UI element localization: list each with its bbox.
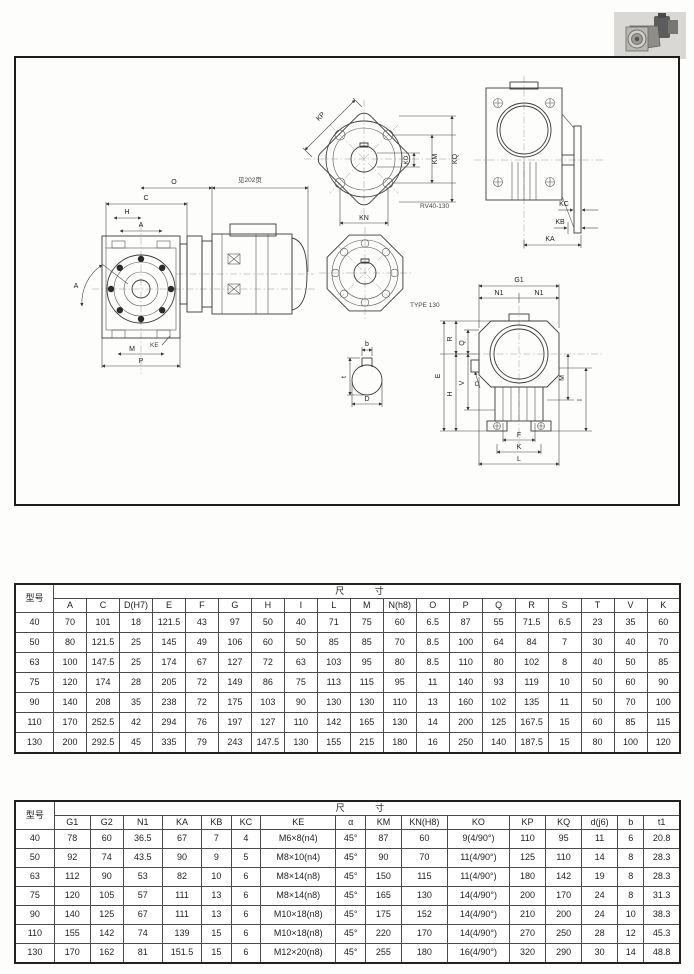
dim-cell: 79 [185,733,218,754]
dim-cell: 100 [449,633,482,653]
dim-cell: 90 [647,673,680,693]
model-column-header: 型号 [15,801,54,830]
table-row: 9014020835238721751039013013011013160102… [15,693,680,713]
column-header: Q [482,599,515,613]
dim-cell: 80 [482,653,515,673]
dim-cell: 147.5 [87,653,120,673]
dim-cell: 174 [87,673,120,693]
dim-cell: 80 [54,633,87,653]
dim-cell: 200 [546,906,582,925]
dim-cell: 25 [120,633,153,653]
dim-cell: 90 [365,849,401,868]
technical-drawing-panel: O 见202页 C H A A KE M P KP [14,56,680,506]
dim-cell: 72 [251,653,284,673]
dim-cell: 210 [510,906,546,925]
dim-cell: 100 [54,653,87,673]
dim-cell: 82 [162,868,201,887]
dim-cell: 135 [515,693,548,713]
column-header: KQ [546,816,582,830]
dim-cell: 8 [548,653,581,673]
table-row: 7512010557111136M8×14(n8)45°16513014(4/9… [15,887,680,906]
dim-label-KN: KN [359,215,369,222]
dim-label-L: L [517,456,521,463]
dim-cell: 50 [251,613,284,633]
dim-cell: 320 [510,944,546,964]
dim-cell: 24 [582,887,618,906]
dim-cell: 115 [401,868,447,887]
dim-cell: 110 [449,653,482,673]
dim-cell: 335 [152,733,185,754]
dim-cell: 120 [647,733,680,754]
model-column-header: 型号 [15,584,54,613]
dim-cell: 70 [383,633,416,653]
dim-cell: 11(4/90°) [447,849,509,868]
dim-cell: 28.3 [644,868,680,887]
dim-cell: 45° [336,906,365,925]
dim-cell: 290 [546,944,582,964]
column-header: S [548,599,581,613]
dim-cell: 53 [123,868,162,887]
column-header: D(H7) [120,599,153,613]
dim-cell: 70 [614,693,647,713]
dim-cell: 162 [90,944,123,964]
dim-cell: 40 [284,613,317,633]
model-cell: 110 [15,713,54,733]
dim-cell: 57 [123,887,162,906]
dim-cell: 28 [582,925,618,944]
model-cell: 75 [15,673,54,693]
dim-cell: 15 [202,925,231,944]
table-row: 63100147.52517467127726310395808.5110801… [15,653,680,673]
dim-cell: 11 [416,673,449,693]
dim-cell: 14(4/90°) [447,925,509,944]
dim-cell: 150 [365,868,401,887]
dim-label-V: V [459,380,466,385]
dim-label-KP: KP [315,111,327,123]
dim-label-I: I [577,399,584,401]
dim-cell: 4 [231,830,260,849]
column-header: b [618,816,644,830]
dim-cell: 130 [383,713,416,733]
dim-cell: 63 [284,653,317,673]
dim-cell: 113 [317,673,350,693]
model-cell: 40 [15,830,54,849]
dim-cell: 67 [185,653,218,673]
dim-cell: 43.5 [123,849,162,868]
dim-cell: 25 [120,653,153,673]
dim-label-E: E [435,373,442,378]
dim-label-C: C [143,195,148,202]
dim-cell: 6.5 [548,613,581,633]
dim-cell: 15 [548,713,581,733]
dimension-table-1: 型号尺 寸ACD(H7)EFGHILMN(h8)OPQRSTVK40701011… [14,583,681,754]
column-header: KP [510,816,546,830]
dim-cell: 180 [401,944,447,964]
dim-cell: 18 [120,613,153,633]
dim-cell: 50 [614,653,647,673]
rear-view: G1 N1 N1 E R H Q V O M I F [435,277,602,466]
dim-cell: 87 [365,830,401,849]
dim-cell: 110 [383,693,416,713]
dim-cell: 130 [317,693,350,713]
dim-cell: 60 [647,613,680,633]
model-cell: 50 [15,849,54,868]
dim-cell: 13 [416,693,449,713]
dim-cell: 95 [383,673,416,693]
dim-label-H: H [447,391,454,396]
dim-cell: 151.5 [162,944,201,964]
dim-label-K: K [517,444,522,451]
dim-cell: 84 [515,633,548,653]
dim-cell: 60 [251,633,284,653]
dim-cell: 95 [350,653,383,673]
key-dim-t: t [341,376,348,378]
dim-label-KE: KE [150,342,159,349]
dim-cell: M10×18(n8) [261,906,336,925]
dim-cell: 45 [120,733,153,754]
model-cell: 130 [15,733,54,754]
dim-cell: 167.5 [515,713,548,733]
dim-cell: 149 [218,673,251,693]
dimension-table-2: 型号尺 寸G1G2N1KAKBKCKEαKMKN(H8)KOKPKQd(j6)b… [14,800,681,964]
dim-cell: 174 [152,653,185,673]
dim-cell: 14(4/90°) [447,887,509,906]
table-row: 13017016281151.5156M12×20(n8)45°25518016… [15,944,680,964]
dim-cell: 90 [162,849,201,868]
dim-cell: 140 [54,693,87,713]
dim-cell: 125 [510,849,546,868]
dim-cell: 60 [614,673,647,693]
dim-label-G1: G1 [514,277,523,284]
dim-cell: 23 [581,613,614,633]
dim-cell: 8 [618,849,644,868]
dim-cell: 74 [123,925,162,944]
dim-cell: 7 [548,633,581,653]
model-cell: 75 [15,887,54,906]
dim-cell: 170 [401,925,447,944]
dim-cell: 170 [54,713,87,733]
dim-cell: 142 [90,925,123,944]
dim-cell: 215 [350,733,383,754]
dim-cell: 110 [546,849,582,868]
dim-cell: 80 [383,653,416,673]
dim-cell: M8×14(n8) [261,887,336,906]
table-row: 130200292.54533579243147.513015521518016… [15,733,680,754]
dim-label-P: P [139,358,144,365]
dim-cell: 145 [152,633,185,653]
dim-cell: 238 [152,693,185,713]
dim-cell: 78 [54,830,90,849]
dim-cell: 112 [54,868,90,887]
dim-cell: 165 [365,887,401,906]
dim-cell: 208 [87,693,120,713]
dim-cell: 243 [218,733,251,754]
column-header: d(j6) [582,816,618,830]
dim-cell: 200 [54,733,87,754]
dim-cell: 13 [202,906,231,925]
dim-cell: 85 [317,633,350,653]
dim-cell: 75 [350,613,383,633]
dim-cell: 60 [581,713,614,733]
dimensions-group-header: 尺 寸 [54,801,680,816]
model-cell: 130 [15,944,54,964]
dim-cell: 50 [284,633,317,653]
dim-cell: 49 [185,633,218,653]
dim-cell: 45° [336,849,365,868]
dim-cell: 60 [90,830,123,849]
dim-cell: 30 [582,944,618,964]
dim-cell: 170 [546,887,582,906]
gearbox-motor-side-view: O 见202页 C H A A KE M P [74,176,316,374]
dim-cell: 106 [218,633,251,653]
dim-cell: 147.5 [251,733,284,754]
dim-cell: 90 [284,693,317,713]
dim-cell: 100 [647,693,680,713]
dim-cell: 197 [218,713,251,733]
shaft-keyway-detail: b t D [341,341,382,407]
angle-label-A: A [74,283,79,290]
dim-cell: 87 [449,613,482,633]
column-header: R [515,599,548,613]
dim-label-KB: KB [555,219,565,226]
dim-cell: 119 [515,673,548,693]
dim-cell: M10×18(n8) [261,925,336,944]
dim-cell: 200 [449,713,482,733]
dim-label-N1-right: N1 [535,290,544,297]
dim-cell: 70 [54,613,87,633]
dim-cell: 8 [618,868,644,887]
dim-cell: 8.5 [416,653,449,673]
table-row: 40786036.56774M6×8(n4)45°87609(4/90°)110… [15,830,680,849]
dim-cell: 36.5 [123,830,162,849]
column-header: α [336,816,365,830]
column-header: N(h8) [383,599,416,613]
column-header: P [449,599,482,613]
dim-cell: 5 [231,849,260,868]
dim-cell: 103 [317,653,350,673]
dim-cell: 15 [548,733,581,754]
dim-label-N1-left: N1 [495,290,504,297]
table-row: 50927443.59095M8×10(n4)45°907011(4/90°)1… [15,849,680,868]
model-cell: 90 [15,693,54,713]
column-header: KE [261,816,336,830]
dim-cell: 28 [120,673,153,693]
dim-cell: 130 [350,693,383,713]
dim-label-A: A [139,222,144,229]
dim-cell: 121.5 [87,633,120,653]
dim-cell: 74 [90,849,123,868]
dim-cell: 11 [548,693,581,713]
dim-cell: 252.5 [87,713,120,733]
dim-cell: 55 [482,613,515,633]
dim-cell: 127 [251,713,284,733]
dim-cell: 71.5 [515,613,548,633]
dim-cell: 9 [202,849,231,868]
column-header: C [87,599,120,613]
dim-cell: 14 [618,944,644,964]
dim-cell: 40 [581,653,614,673]
column-header: KN(H8) [401,816,447,830]
dim-cell: 255 [365,944,401,964]
dim-cell: 110 [284,713,317,733]
dim-cell: 111 [162,887,201,906]
dim-cell: 45° [336,830,365,849]
dim-cell: 95 [546,830,582,849]
dim-cell: 250 [546,925,582,944]
dim-cell: 115 [647,713,680,733]
dim-cell: 13 [202,887,231,906]
dim-cell: 72 [185,673,218,693]
see-page-note: 见202页 [238,176,262,184]
dim-cell: 7 [202,830,231,849]
dim-cell: 170 [54,944,90,964]
column-header: N1 [123,816,162,830]
column-header: V [614,599,647,613]
table-row: 407010118121.5439750407175606.5875571.56… [15,613,680,633]
column-header: H [251,599,284,613]
dim-cell: 180 [383,733,416,754]
dim-cell: 40 [614,633,647,653]
output-shaft-side-view: KC KB KA [474,76,604,250]
dim-cell: 6 [231,925,260,944]
column-header: KB [202,816,231,830]
dim-cell: 85 [614,713,647,733]
dim-cell: 14(4/90°) [447,906,509,925]
dim-cell: 45.3 [644,925,680,944]
dim-cell: 155 [317,733,350,754]
product-photo [614,12,686,59]
dim-label-KQ: KQ [452,153,459,164]
column-header: K [647,599,680,613]
dim-cell: 120 [54,887,90,906]
dim-cell: 160 [449,693,482,713]
dim-label-Q: Q [459,340,466,346]
table-row: 7512017428205721498675113115951114093119… [15,673,680,693]
dim-cell: 101 [87,613,120,633]
column-header: A [54,599,87,613]
dim-cell: 14 [416,713,449,733]
dim-cell: 152 [401,906,447,925]
dim-cell: 10 [202,868,231,887]
dim-label-M: M [559,375,566,381]
dim-cell: 50 [581,693,614,713]
dim-cell: 6.5 [416,613,449,633]
dim-cell: 20.8 [644,830,680,849]
dim-cell: 42 [120,713,153,733]
table-row: 63112905382106M8×14(n8)45°15011511(4/90°… [15,868,680,887]
column-header: I [284,599,317,613]
dim-label-M: M [129,346,135,353]
dim-cell: 93 [482,673,515,693]
dim-cell: 19 [582,868,618,887]
key-dim-D: D [364,396,369,403]
dim-cell: 75 [284,673,317,693]
dim-cell: 140 [449,673,482,693]
dim-label-KC: KC [559,201,569,208]
dim-cell: 72 [185,693,218,713]
dim-cell: 70 [401,849,447,868]
dim-cell: M8×14(n8) [261,868,336,887]
column-header: KO [447,816,509,830]
dim-cell: 12 [618,925,644,944]
model-cell: 63 [15,653,54,673]
dim-cell: 35 [120,693,153,713]
column-header: O [416,599,449,613]
dim-cell: 121.5 [152,613,185,633]
column-header: KM [365,816,401,830]
dim-cell: 28.3 [644,849,680,868]
dim-cell: 64 [482,633,515,653]
dim-cell: M6×8(n4) [261,830,336,849]
output-flange-view: TYPE 130 [319,227,440,319]
column-header: L [317,599,350,613]
dim-label-O: O [171,179,177,186]
dim-cell: 14 [582,849,618,868]
dim-cell: 70 [647,633,680,653]
table-row: 5080121.5251454910660508585708.510064847… [15,633,680,653]
dim-cell: 31.3 [644,887,680,906]
dimensions-group-header: 尺 寸 [54,584,680,599]
dim-cell: 140 [54,906,90,925]
column-header: G2 [90,816,123,830]
dim-cell: 270 [510,925,546,944]
dim-cell: 35 [614,613,647,633]
dim-cell: 9(4/90°) [447,830,509,849]
column-header: t1 [644,816,680,830]
dim-cell: 85 [647,653,680,673]
dim-cell: 30 [581,633,614,653]
dim-cell: 139 [162,925,201,944]
dim-cell: 90 [90,868,123,887]
column-header: T [581,599,614,613]
dim-cell: 175 [218,693,251,713]
table-row: 9014012567111136M10×18(n8)45°17515214(4/… [15,906,680,925]
input-flange-view: KP KM KQ KO KN RV40-130 [303,98,462,226]
dim-cell: 16 [416,733,449,754]
column-header: F [185,599,218,613]
dim-cell: 125 [482,713,515,733]
model-cell: 50 [15,633,54,653]
dim-cell: 102 [515,653,548,673]
dim-cell: 45° [336,925,365,944]
dim-cell: 6 [231,887,260,906]
dim-cell: 86 [251,673,284,693]
dim-cell: 110 [510,830,546,849]
dim-cell: 45° [336,868,365,887]
type-note: TYPE 130 [410,302,440,309]
dim-cell: 111 [162,906,201,925]
dim-cell: 127 [218,653,251,673]
dim-label-R: R [447,336,454,341]
dim-cell: 187.5 [515,733,548,754]
dim-cell: 16(4/90°) [447,944,509,964]
flange-model-note: RV40-130 [420,203,450,210]
model-cell: 40 [15,613,54,633]
dim-cell: 15 [202,944,231,964]
column-header: KA [162,816,201,830]
dim-cell: 102 [482,693,515,713]
dim-cell: 142 [546,868,582,887]
dim-cell: 6 [231,868,260,887]
dim-cell: 125 [90,906,123,925]
dim-cell: 81 [123,944,162,964]
dim-cell: 6 [618,830,644,849]
dim-cell: 60 [383,613,416,633]
dim-cell: 6 [231,944,260,964]
dim-cell: 85 [350,633,383,653]
dim-cell: 92 [54,849,90,868]
dim-cell: 97 [218,613,251,633]
